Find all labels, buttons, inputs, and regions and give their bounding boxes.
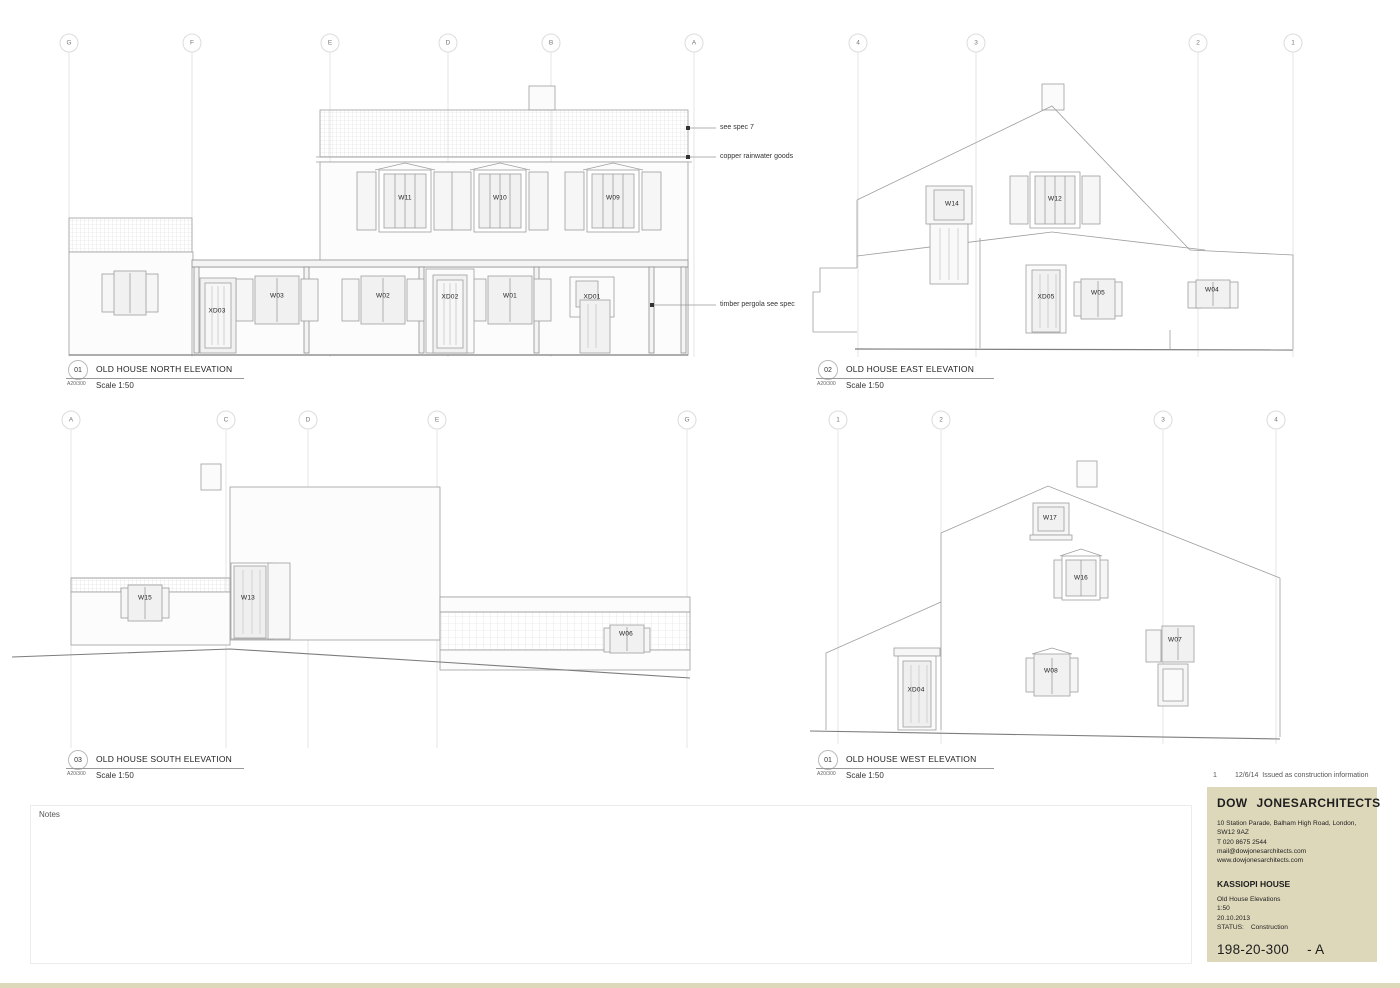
viewport-title-text: OLD HOUSE NORTH ELEVATION xyxy=(96,364,232,374)
window-tag-w09: W09 xyxy=(606,195,620,202)
title-block: DOW JONES ARCHITECTS 10 Station Parade, … xyxy=(1207,787,1377,962)
viewport-scale: Scale 1:50 xyxy=(846,771,884,780)
firm-contact: 10 Station Parade, Balham High Road, Lon… xyxy=(1217,819,1368,866)
revision-entry: 112/6/14 Issued as construction informat… xyxy=(1213,772,1368,779)
sheet-bottom-strip xyxy=(0,983,1400,988)
window-tag-w03: W03 xyxy=(270,293,284,300)
grid-bubble: E xyxy=(428,411,447,430)
annotation-rainwater: copper rainwater goods xyxy=(720,153,793,160)
notes-label: Notes xyxy=(39,810,60,819)
drawing-number: 198-20-300 - A xyxy=(1217,942,1368,957)
window-tag-w07: W07 xyxy=(1168,637,1182,644)
viewport-divider xyxy=(816,768,994,769)
firm-word-1: DOW xyxy=(1217,796,1248,810)
window-tag-w02: W02 xyxy=(376,293,390,300)
firm-website: www.dowjonesarchitects.com xyxy=(1217,856,1368,865)
viewport-title-east: 02 OLD HOUSE EAST ELEVATION A20/300 Scal… xyxy=(816,360,1036,394)
drawing-sheet: G F E D B A 4 3 2 1 A C D E G 1 2 3 4 W1… xyxy=(0,0,1400,988)
firm-word-3: ARCHITECTS xyxy=(1299,796,1380,810)
east-w04-window xyxy=(1188,280,1238,308)
window-tag-w17: W17 xyxy=(1043,515,1057,522)
viewport-ref: A20/300 xyxy=(67,771,86,777)
revision-date: 12/6/14 xyxy=(1235,772,1258,779)
drawing-scale: 1:50 xyxy=(1217,904,1368,913)
door-tag-xd02: XD02 xyxy=(441,294,458,301)
drawing-date: 20.10.2013 xyxy=(1217,914,1368,923)
viewport-divider xyxy=(816,378,994,379)
north-ground-windows xyxy=(236,276,551,324)
east-w05-window xyxy=(1074,279,1122,319)
status-label: STATUS: xyxy=(1217,924,1244,931)
grid-bubble: E xyxy=(321,34,340,53)
window-tag-w14: W14 xyxy=(945,201,959,208)
south-elevation-drawing xyxy=(12,464,690,678)
viewport-ref: A20/300 xyxy=(817,381,836,387)
grid-bubble: 1 xyxy=(1284,34,1303,53)
viewport-number: 02 xyxy=(818,360,838,380)
notes-box: Notes xyxy=(30,805,1192,964)
grid-bubble: 4 xyxy=(1267,411,1286,430)
viewport-title-north: 01 OLD HOUSE NORTH ELEVATION A20/300 Sca… xyxy=(66,360,286,394)
north-wing-window xyxy=(102,271,158,315)
viewport-number: 03 xyxy=(68,750,88,770)
grid-bubble: C xyxy=(217,411,236,430)
window-tag-w13: W13 xyxy=(241,595,255,602)
drawing-number-value: 198-20-300 xyxy=(1217,942,1289,957)
viewport-title-text: OLD HOUSE WEST ELEVATION xyxy=(846,754,976,764)
window-tag-w12: W12 xyxy=(1048,196,1062,203)
grid-bubble: F xyxy=(183,34,202,53)
viewport-number: 01 xyxy=(68,360,88,380)
window-tag-w16: W16 xyxy=(1074,575,1088,582)
viewport-scale: Scale 1:50 xyxy=(96,771,134,780)
firm-phone: T 020 8675 2544 xyxy=(1217,838,1368,847)
grid-bubble: 3 xyxy=(1154,411,1173,430)
west-w17-window xyxy=(1030,503,1072,540)
window-tag-w11: W11 xyxy=(398,195,411,202)
grid-bubble: D xyxy=(299,411,318,430)
window-tag-w15: W15 xyxy=(138,595,152,602)
viewport-scale: Scale 1:50 xyxy=(846,381,884,390)
door-tag-xd04: XD04 xyxy=(907,687,924,694)
grid-bubble: A xyxy=(685,34,704,53)
grid-bubble: 2 xyxy=(932,411,951,430)
viewport-divider xyxy=(66,768,244,769)
grid-bubble: G xyxy=(678,411,697,430)
south-w13-door xyxy=(231,563,290,639)
grid-bubble: 1 xyxy=(829,411,848,430)
north-elevation-drawing xyxy=(69,86,716,355)
viewport-ref: A20/300 xyxy=(817,771,836,777)
grid-bubble: 4 xyxy=(849,34,868,53)
door-tag-xd05: XD05 xyxy=(1037,294,1054,301)
viewport-scale: Scale 1:50 xyxy=(96,381,134,390)
annotation-see-spec: see spec 7 xyxy=(720,124,754,131)
drawing-title: Old House Elevations xyxy=(1217,895,1368,904)
window-tag-w01: W01 xyxy=(503,293,517,300)
drawing-meta: Old House Elevations 1:50 20.10.2013 STA… xyxy=(1217,895,1368,932)
window-tag-w10: W10 xyxy=(493,195,507,202)
status-value: Construction xyxy=(1251,924,1288,931)
revision-text: Issued as construction information xyxy=(1262,772,1368,779)
door-tag-xd01: XD01 xyxy=(583,294,600,301)
window-tag-w08: W08 xyxy=(1044,668,1058,675)
project-name: KASSIOPI HOUSE xyxy=(1217,879,1368,889)
window-tag-w04: W04 xyxy=(1205,287,1219,294)
viewport-ref: A20/300 xyxy=(67,381,86,387)
viewport-title-text: OLD HOUSE SOUTH ELEVATION xyxy=(96,754,232,764)
viewport-divider xyxy=(66,378,244,379)
door-tag-xd03: XD03 xyxy=(208,308,225,315)
firm-email: mail@dowjonesarchitects.com xyxy=(1217,847,1368,856)
viewport-number: 01 xyxy=(818,750,838,770)
drawing-status: STATUS:Construction xyxy=(1217,923,1368,932)
firm-word-2: JONES xyxy=(1257,796,1300,810)
viewport-title-west: 01 OLD HOUSE WEST ELEVATION A20/300 Scal… xyxy=(816,750,1036,784)
window-tag-w06: W06 xyxy=(619,631,633,638)
grid-bubble: 3 xyxy=(967,34,986,53)
grid-bubble: D xyxy=(439,34,458,53)
south-w15-window xyxy=(121,585,169,621)
firm-address: 10 Station Parade, Balham High Road, Lon… xyxy=(1217,819,1368,838)
grid-bubble: A xyxy=(62,411,81,430)
revision-number: 1 xyxy=(1213,772,1235,779)
drawing-revision-suffix: - A xyxy=(1307,942,1324,957)
grid-bubble: 2 xyxy=(1189,34,1208,53)
west-elevation-drawing xyxy=(810,461,1280,739)
viewport-title-south: 03 OLD HOUSE SOUTH ELEVATION A20/300 Sca… xyxy=(66,750,286,784)
east-elevation-drawing xyxy=(813,84,1293,350)
firm-name: DOW JONES ARCHITECTS xyxy=(1217,796,1368,810)
viewport-title-text: OLD HOUSE EAST ELEVATION xyxy=(846,364,974,374)
grid-bubble: G xyxy=(60,34,79,53)
south-w06-window xyxy=(604,625,650,653)
annotation-timber-pergola: timber pergola see spec xyxy=(720,301,795,308)
grid-bubble: B xyxy=(542,34,561,53)
window-tag-w05: W05 xyxy=(1091,290,1105,297)
